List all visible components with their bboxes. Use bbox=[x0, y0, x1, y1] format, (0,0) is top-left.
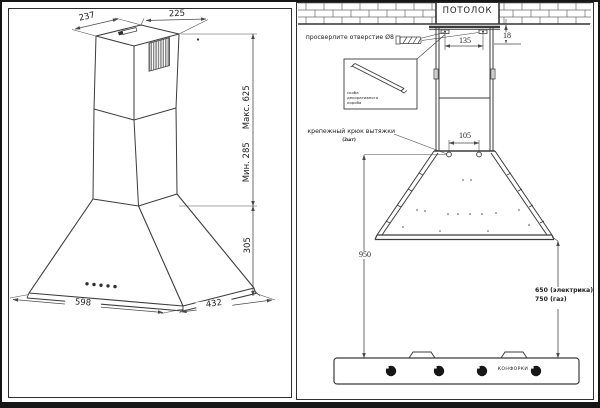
mount-hook-note-sub: (2шт) bbox=[321, 138, 377, 142]
hood-canopy bbox=[375, 151, 554, 240]
hood-isometric-drawing bbox=[9, 9, 290, 396]
mount-hook-note: крепежный крюк вытяжки bbox=[303, 129, 395, 135]
bracket-caption-line3: короба bbox=[347, 101, 361, 105]
installation-drawing: 237 225 Макс. 625 Мин. 285 305 598 432 bbox=[0, 0, 600, 408]
burners-label: КОНФОРКИ bbox=[492, 368, 534, 373]
drill-hole-note: просверлите отверстие Ø8 bbox=[299, 35, 394, 41]
installation-drawing-lines bbox=[297, 3, 591, 397]
hood-body bbox=[27, 25, 256, 311]
canopy-rivets bbox=[402, 179, 530, 232]
dim-chimney-max-label: Макс. 625 bbox=[243, 82, 252, 132]
dim-gas-height-label: 750 (газ) bbox=[535, 297, 567, 303]
dim-hook-spacing-label: 105 bbox=[453, 132, 477, 140]
installation-scheme-panel: ПОТОЛОК просверлите отверстие Ø8 скоба д… bbox=[296, 2, 594, 400]
dimension-lines bbox=[10, 18, 275, 314]
ceiling-label: ПОТОЛОК bbox=[436, 7, 499, 16]
cooktop bbox=[334, 352, 579, 384]
control-buttons bbox=[85, 282, 116, 288]
install-dimension-lines bbox=[364, 19, 558, 358]
dim-ceiling-gap-label: 18 bbox=[498, 32, 516, 40]
dim-bracket-spacing-label: 135 bbox=[453, 37, 477, 45]
vent-grille-icon bbox=[149, 38, 170, 72]
dim-electric-height-label: 650 (электрика) bbox=[535, 288, 593, 294]
hood-dimensions-panel: 237 225 Макс. 625 Мин. 285 305 598 432 bbox=[8, 8, 292, 398]
dim-chimney-min-label: Мин. 285 bbox=[243, 137, 252, 187]
dim-canopy-height-label: 305 bbox=[244, 230, 253, 260]
dim-hook-to-hob-label: 950 bbox=[353, 251, 377, 259]
